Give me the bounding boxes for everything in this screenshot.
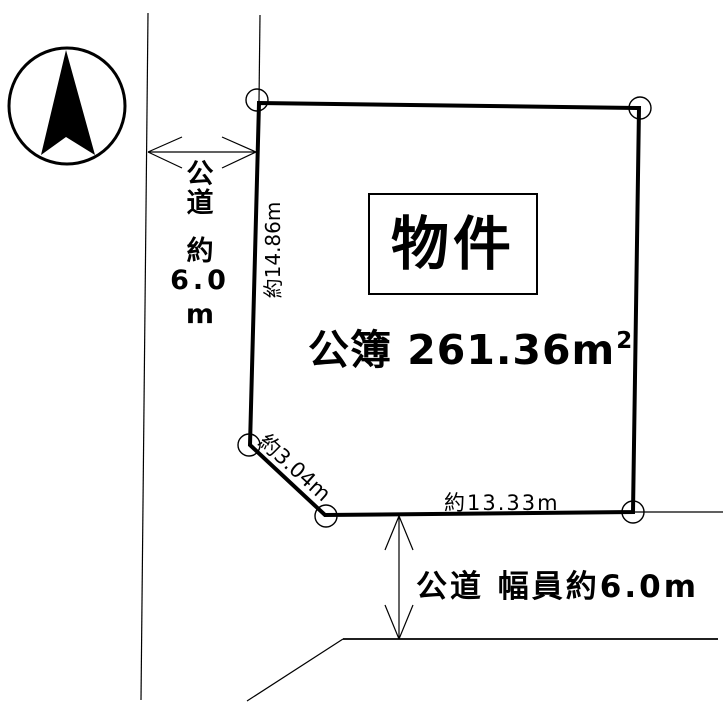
west-road-label-char: 6.0 bbox=[170, 266, 230, 295]
south-road-label: 公道 幅員約6.0m bbox=[416, 561, 699, 606]
parcel-label-box: 物件 bbox=[368, 193, 538, 295]
west-road-label-char: 公 bbox=[187, 160, 214, 189]
west-road-label-char: 道 bbox=[187, 189, 214, 218]
south-road-corner-line bbox=[247, 639, 343, 701]
parcel-boundary bbox=[250, 103, 639, 515]
west-road-label-char: 約 bbox=[187, 237, 214, 266]
west-road-right-line-upper bbox=[259, 15, 260, 101]
west-road-label-char: m bbox=[186, 300, 214, 329]
registered-area-superscript: 2 bbox=[616, 328, 633, 354]
north-arrow-icon bbox=[9, 48, 125, 164]
west-edge-dimension-label: 約14.86m bbox=[257, 190, 279, 310]
west-road-left-line bbox=[141, 13, 148, 700]
site-plan-canvas: 公 道 約 6.0 m 約14.86m 約3.04m 約13.33m 物件 公簿… bbox=[0, 0, 723, 711]
registered-area-label: 公簿 261.36m2 bbox=[308, 316, 632, 376]
registered-area-main: 公簿 261.36m bbox=[308, 326, 615, 374]
parcel-title: 物件 bbox=[391, 215, 515, 273]
south-edge-dimension-label: 約13.33m bbox=[444, 487, 560, 517]
south-road-width-arrow bbox=[385, 516, 413, 639]
west-road-label: 公 道 約 6.0 m bbox=[170, 160, 230, 329]
